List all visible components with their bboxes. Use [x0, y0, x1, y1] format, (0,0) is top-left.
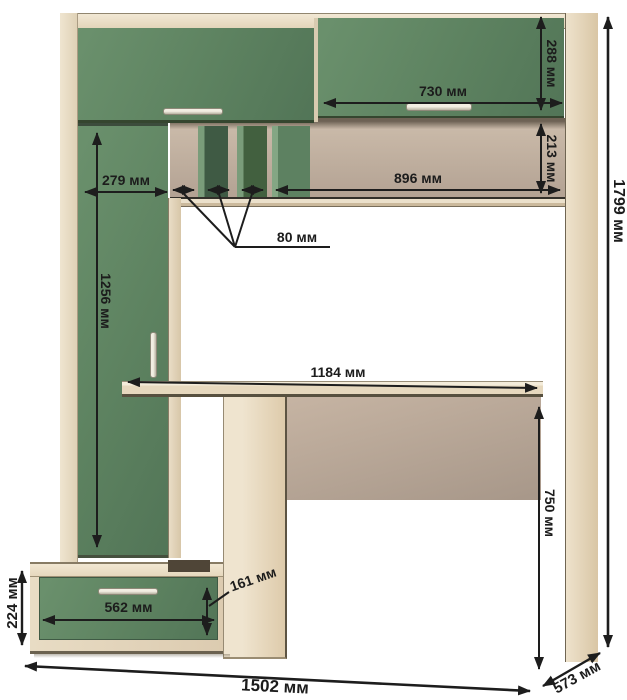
shelf-divider	[272, 126, 310, 198]
dim-label-desk-height: 750 мм	[543, 479, 557, 547]
column-side-edge	[168, 198, 181, 558]
shelf-board	[170, 197, 566, 207]
dim-label-top-right-door-width: 730 мм	[324, 84, 562, 98]
dim-label-left-door-height: 1256 мм	[99, 258, 113, 344]
shelf-divider	[237, 126, 267, 198]
dim-label-slot-width: 80 мм	[266, 230, 328, 244]
dim-label-overall-width: 1502 мм	[175, 673, 376, 700]
dim-label-left-section-width: 279 мм	[85, 173, 167, 187]
dim-label-desktop-width: 1184 мм	[238, 365, 438, 379]
desk-support-panel	[223, 397, 287, 659]
dim-label-overall-height: 1799 мм	[610, 168, 626, 254]
tall-left-door	[78, 123, 168, 558]
top-left-door	[78, 28, 314, 123]
column-floor-shadow	[168, 560, 210, 572]
drawer-handle	[98, 588, 158, 595]
drawer-floor-shadow	[34, 654, 230, 658]
desktop	[122, 381, 543, 397]
dim-label-drawer-unit-height: 224 мм	[5, 573, 20, 633]
top-left-door-handle	[163, 108, 223, 115]
right-side-panel	[565, 13, 598, 662]
shelf-divider	[198, 126, 228, 198]
tall-door-handle	[150, 332, 157, 378]
top-right-door-handle	[406, 103, 472, 111]
dim-label-drawer-width: 562 мм	[43, 600, 214, 614]
hutch-niche	[170, 118, 565, 198]
desk-back-panel	[287, 397, 541, 500]
top-right-door	[318, 18, 564, 118]
furniture-dimension-diagram: 288 мм 730 мм 213 мм 896 мм 279 мм 80 мм…	[0, 0, 627, 700]
left-side-panel	[60, 13, 78, 564]
dim-label-niche-width: 896 мм	[276, 171, 560, 185]
